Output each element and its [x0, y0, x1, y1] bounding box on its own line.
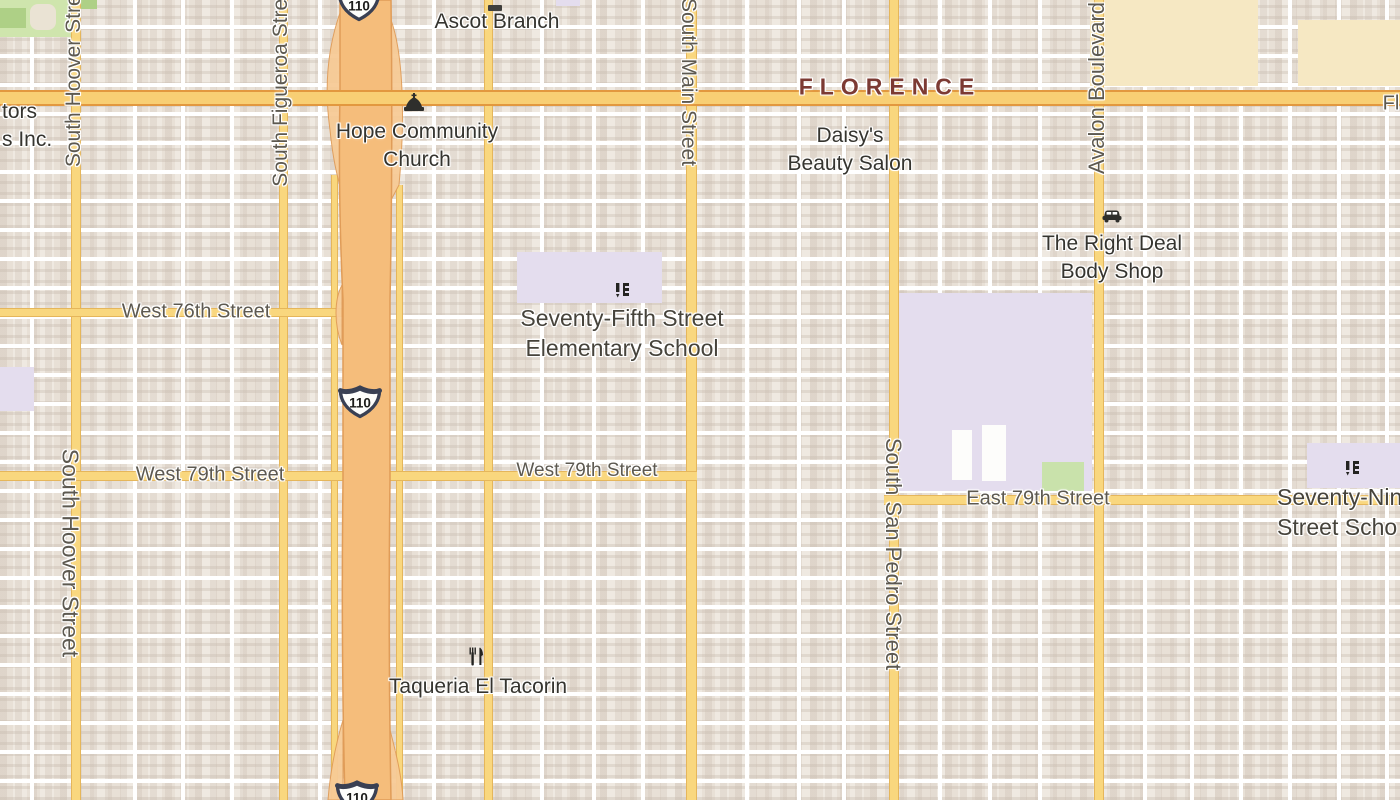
freeway-frontage-west — [331, 175, 338, 800]
minor-street-vertical — [181, 0, 185, 800]
minor-street-vertical — [1143, 0, 1147, 800]
minor-street-vertical — [230, 0, 234, 800]
route-shield-110-top: 110 — [336, 0, 382, 27]
minor-street-vertical — [592, 0, 596, 800]
street-label-south-hoover-north: South Hoover Street — [62, 0, 86, 167]
freeway-frontage-east — [396, 185, 403, 800]
school-building-2 — [982, 425, 1006, 481]
poi-label-hope-community-church: Hope CommunityChurch — [336, 118, 498, 174]
street-label-south-figueroa: South Figueroa Street — [269, 0, 293, 187]
school-grounds-topedge — [556, 0, 580, 6]
minor-street-vertical — [1385, 0, 1389, 800]
svg-text:110: 110 — [348, 0, 370, 14]
park-building — [30, 4, 56, 30]
park-dark-patch-1 — [0, 8, 26, 28]
street-label-south-hoover-south: South Hoover Street — [57, 449, 84, 657]
south-san-pedro-street-road — [889, 0, 899, 800]
poi-label-right-deal-body-shop: The Right DealBody Shop — [1042, 230, 1182, 286]
svg-text:110: 110 — [346, 791, 368, 800]
minor-street-vertical — [1239, 0, 1243, 800]
school-label-seventy-fifth: Seventy-Fifth StreetElementary School — [520, 303, 723, 363]
poi-label-ascot-branch: Ascot Branch — [435, 8, 560, 36]
minor-street-vertical — [1190, 0, 1194, 800]
minor-street-vertical — [318, 0, 322, 800]
poi-label-taqueria-el-tacorin: Taqueria El Tacorin — [389, 673, 567, 701]
street-label-avalon-boulevard: Avalon Boulevard — [1084, 2, 1110, 174]
school-label-seventy-ninth: Seventy-NinStreet Scho — [1277, 482, 1400, 542]
street-label-west-79th-a: West 79th Street — [136, 464, 285, 487]
neighborhood-label-florence: FLORENCE — [799, 74, 982, 101]
poi-label-tors-inc: torss Inc. — [2, 98, 52, 154]
street-label-south-san-pedro: South San Pedro Street — [880, 438, 906, 670]
street-label-west-76th: West 76th Street — [122, 301, 271, 324]
minor-street-vertical — [842, 0, 846, 800]
minor-street-vertical — [745, 0, 749, 800]
minor-street-vertical — [797, 0, 801, 800]
svg-text:110: 110 — [349, 396, 371, 411]
street-label-fl-cut: Fl — [1383, 93, 1400, 116]
map-canvas[interactable]: 110110110 FLORENCEWest 76th StreetWest 7… — [0, 0, 1400, 800]
street-label-east-79th: East 79th Street — [966, 488, 1109, 511]
school-grounds-75th — [517, 252, 662, 303]
minor-street-vertical — [641, 0, 645, 800]
street-label-south-main: South Main Street — [676, 0, 700, 166]
minor-street-vertical — [133, 0, 137, 800]
route-shield-110-bottom: 110 — [334, 780, 380, 800]
retail-block-2 — [1298, 20, 1400, 86]
retail-block-1 — [1090, 0, 1258, 86]
poi-label-daisys-beauty-salon: Daisy'sBeauty Salon — [788, 122, 913, 178]
minor-street-vertical — [1337, 0, 1341, 800]
florence-avenue-road — [0, 90, 1400, 106]
route-shield-110-middle: 110 — [337, 385, 383, 424]
minor-street-vertical — [1288, 0, 1292, 800]
school-grounds-leftedge — [0, 367, 34, 411]
street-label-west-79th-b: West 79th Street — [516, 460, 657, 482]
school-building-1 — [952, 430, 972, 480]
